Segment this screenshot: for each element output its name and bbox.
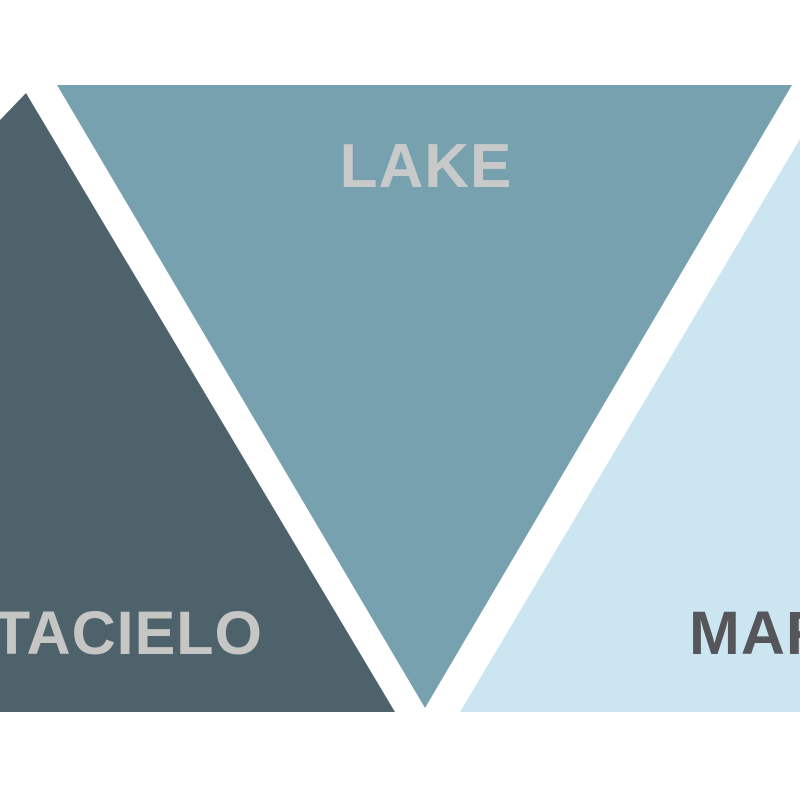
mare-label: MARE xyxy=(689,603,800,664)
grattacielo-label: GRATTACIELO xyxy=(0,603,263,664)
palette-graphic: LAKE GRATTACIELO MARE xyxy=(0,0,800,800)
lake-label: LAKE xyxy=(340,136,513,198)
artwork-band: LAKE GRATTACIELO MARE xyxy=(0,85,800,712)
